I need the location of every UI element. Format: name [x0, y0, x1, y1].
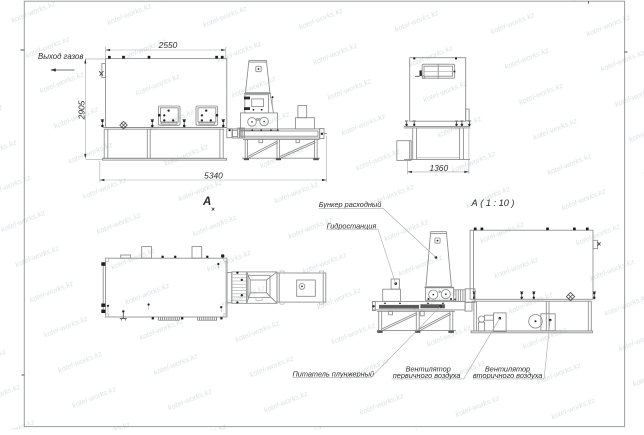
svg-text:5340: 5340	[204, 171, 223, 181]
svg-text:Питатель плунжерный: Питатель плунжерный	[293, 369, 375, 378]
svg-text:А: А	[202, 196, 211, 208]
svg-text:2550: 2550	[158, 40, 178, 50]
svg-text:2905: 2905	[76, 100, 86, 120]
svg-text:А ( 1 : 10 ): А ( 1 : 10 )	[471, 198, 515, 208]
svg-text:Выход газов: Выход газов	[38, 52, 83, 61]
svg-text:Бункер расходный: Бункер расходный	[319, 200, 382, 209]
svg-text:1360: 1360	[429, 163, 448, 173]
